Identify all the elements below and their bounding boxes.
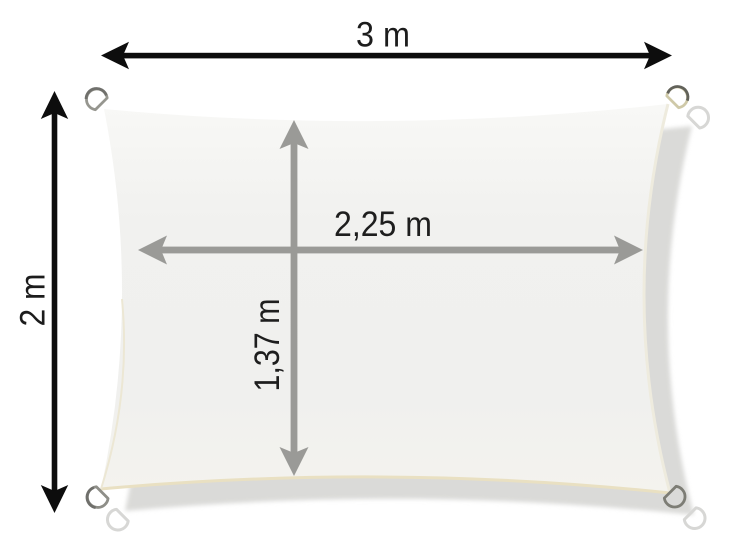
svg-text:2 m: 2 m	[14, 274, 53, 327]
svg-text:1,37 m: 1,37 m	[248, 299, 287, 392]
svg-text:3 m: 3 m	[356, 16, 410, 55]
svg-text:2,25 m: 2,25 m	[334, 205, 432, 244]
